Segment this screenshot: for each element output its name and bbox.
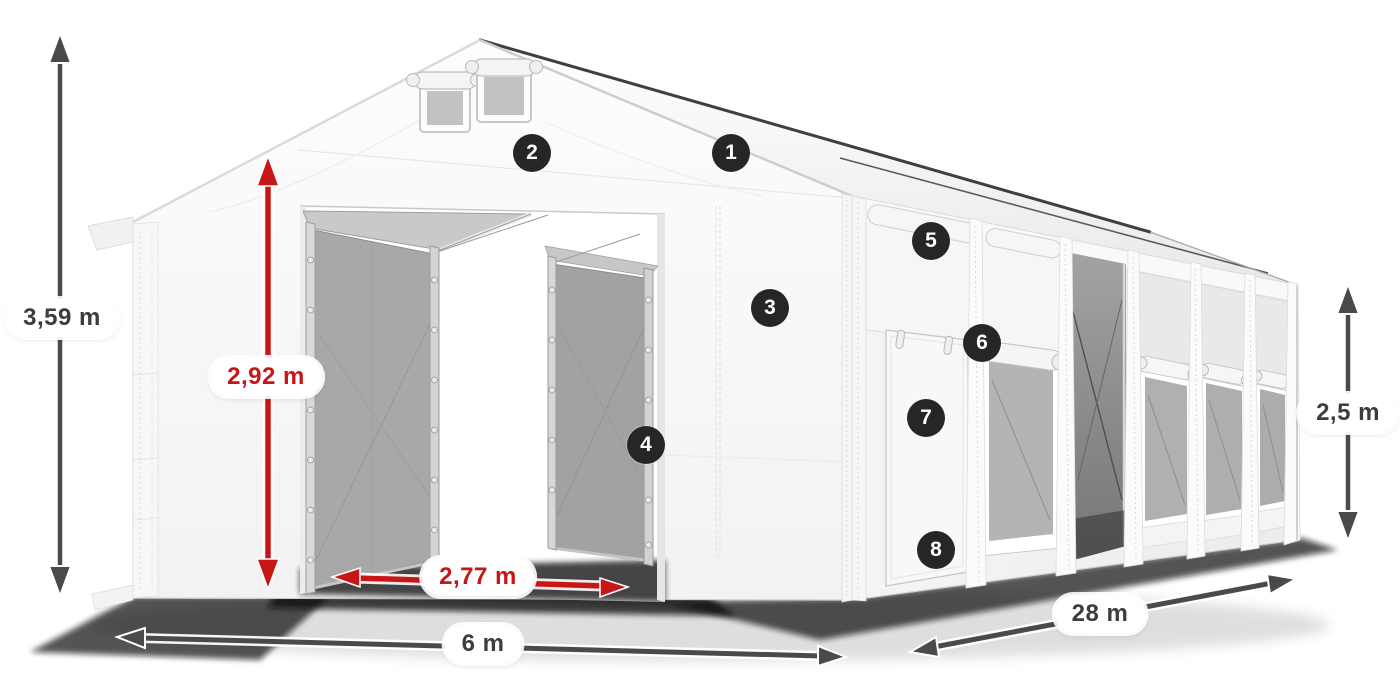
side-height-label: 2,5 m xyxy=(1299,394,1397,432)
entrance-height-label: 2,92 m xyxy=(210,358,322,396)
gate-pole xyxy=(430,246,439,566)
entrance-width-label: 2,77 m xyxy=(422,558,534,596)
front-entrance-opening xyxy=(300,206,665,602)
part-marker-3-front-wall[interactable]: 3 xyxy=(751,289,789,327)
gate-pole xyxy=(644,268,653,566)
total-height-label: 3,59 m xyxy=(6,299,118,337)
vent-roller xyxy=(414,72,476,89)
gable-vent-window-right xyxy=(466,59,543,122)
tent-illustration xyxy=(0,0,1400,700)
part-marker-2-gable[interactable]: 2 xyxy=(513,134,551,172)
part-marker-5-side-panel[interactable]: 5 xyxy=(912,222,950,260)
part-marker-4-inner-gate[interactable]: 4 xyxy=(627,426,665,464)
side-mesh-window xyxy=(974,340,1068,556)
part-marker-8-door-bottom[interactable]: 8 xyxy=(917,531,955,569)
front-width-label: 6 m xyxy=(445,625,522,663)
front-left-corner-pillar xyxy=(133,222,158,598)
part-marker-1-roof[interactable]: 1 xyxy=(712,134,750,172)
inner-mesh-gate-rear xyxy=(545,234,658,566)
tent-dimension-diagram: 3,59 m 2,92 m 2,77 m 6 m 28 m 2,5 m 1 2 … xyxy=(0,0,1400,700)
part-marker-6-window[interactable]: 6 xyxy=(963,324,1001,362)
part-marker-7-side-door[interactable]: 7 xyxy=(907,399,945,437)
vent-roller xyxy=(473,59,535,76)
gate-pole xyxy=(548,256,556,550)
length-label: 28 m xyxy=(1055,595,1146,633)
